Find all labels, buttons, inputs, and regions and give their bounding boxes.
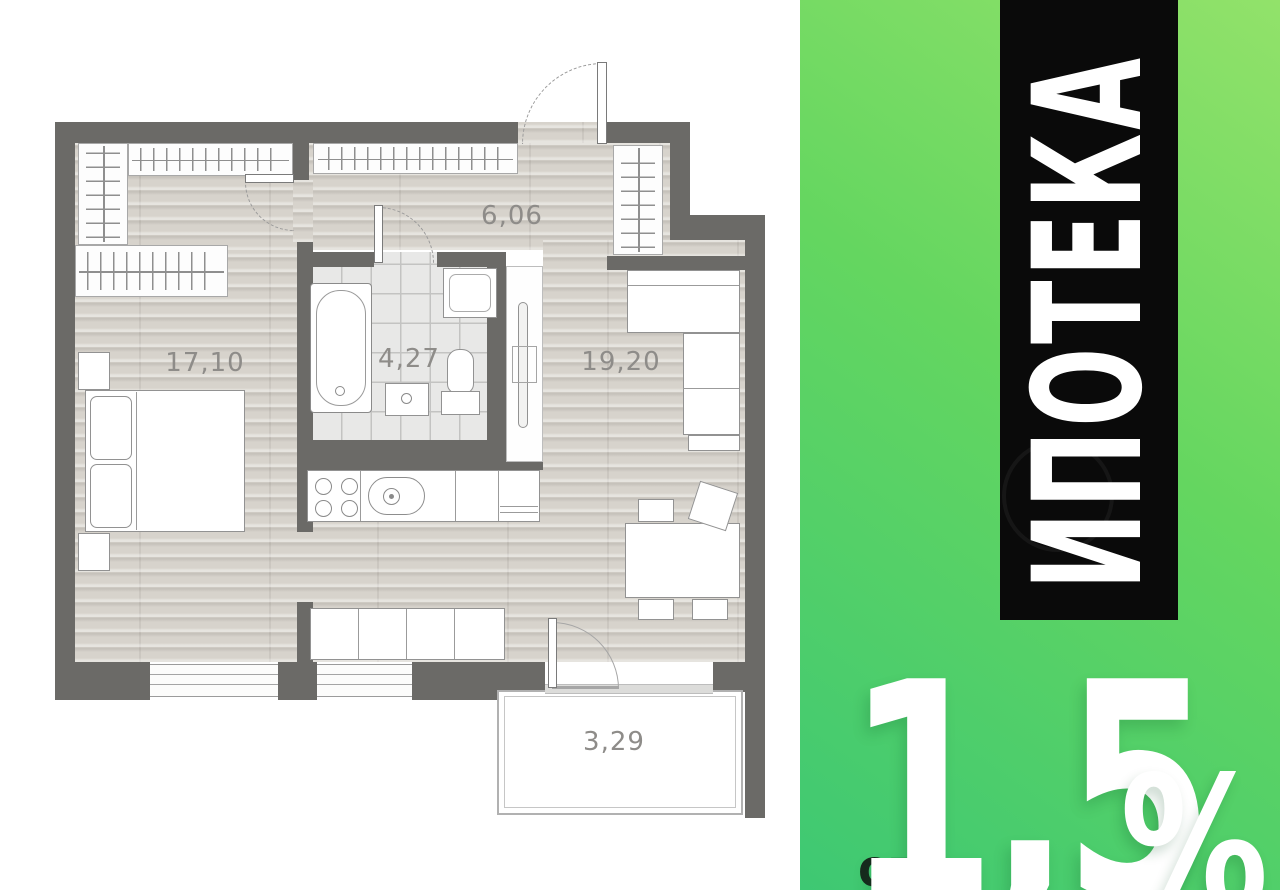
balcony-door — [548, 618, 557, 688]
wall — [278, 662, 317, 700]
counter-divider — [360, 471, 361, 521]
pillow — [90, 464, 132, 528]
stove-burner — [315, 500, 332, 517]
chair — [692, 599, 728, 620]
room-label-bedroom: 17,10 — [165, 348, 244, 378]
stove-burner — [341, 478, 358, 495]
counter-divider — [498, 471, 499, 521]
nightstand — [78, 352, 110, 390]
closet-shelf — [78, 143, 128, 245]
wall — [293, 122, 309, 180]
dining-table — [625, 523, 740, 598]
room-label-bathroom: 4,27 — [378, 344, 440, 374]
window — [317, 664, 412, 697]
stove-burner — [315, 478, 332, 495]
room-label-living: 19,20 — [581, 347, 660, 377]
kitchen-sink-drain — [389, 494, 394, 499]
rate-percent: % — [1120, 752, 1268, 890]
counter-divider — [358, 609, 359, 659]
kitchen-counter — [310, 608, 505, 660]
counter-divider — [406, 609, 407, 659]
bed-mattress-line — [136, 392, 137, 530]
closet-shelf — [613, 145, 663, 255]
washing-machine-inner — [449, 274, 491, 312]
sofa-armrest — [688, 435, 740, 451]
nightstand — [78, 533, 110, 571]
listing-image: 6,06 17,10 4,27 19,20 3,29 ИПОТЕКА от 1,… — [0, 0, 1280, 890]
floor-doorway-kitchen — [297, 532, 313, 602]
stove-burner — [341, 500, 358, 517]
pillow — [90, 396, 132, 460]
mortgage-banner: ИПОТЕКА от 1,5 % — [800, 0, 1280, 890]
room-label-balcony: 3,29 — [583, 727, 645, 757]
wall — [55, 122, 75, 700]
mortgage-box: ИПОТЕКА — [1000, 0, 1178, 620]
room-label-hallway: 6,06 — [481, 201, 543, 231]
sink-drain — [401, 393, 412, 404]
bathroom-door — [374, 205, 383, 263]
counter-divider — [455, 471, 456, 521]
wall — [607, 256, 745, 270]
entrance-door — [597, 62, 607, 144]
sofa-cushion-line — [628, 285, 739, 286]
wall — [55, 662, 150, 700]
closet-shelf — [128, 143, 293, 176]
bedroom-door — [245, 174, 294, 183]
wall — [713, 662, 765, 692]
bathtub-drain — [335, 386, 345, 396]
chair — [638, 599, 674, 620]
toilet — [447, 349, 474, 394]
drawer-line — [500, 512, 538, 513]
wall — [745, 240, 765, 818]
wall — [670, 143, 690, 218]
door-swing-arc — [522, 63, 603, 144]
floor-doorway-bedroom — [293, 180, 313, 242]
sofa — [627, 270, 740, 333]
toilet-tank — [441, 391, 480, 415]
floor-plan: 6,06 17,10 4,27 19,20 3,29 — [0, 0, 800, 890]
wall — [313, 252, 374, 267]
wall — [670, 215, 765, 240]
sofa — [683, 333, 740, 435]
counter-divider — [454, 609, 455, 659]
chair — [638, 499, 674, 522]
closet-shelf — [313, 143, 518, 174]
wall — [607, 122, 690, 143]
wardrobe — [75, 245, 228, 297]
sofa-cushion-line — [683, 388, 739, 389]
wall — [55, 122, 518, 143]
window — [150, 664, 278, 697]
drawer-line — [500, 506, 538, 507]
tv-stand — [512, 346, 537, 383]
watermark-circle — [1002, 440, 1114, 552]
